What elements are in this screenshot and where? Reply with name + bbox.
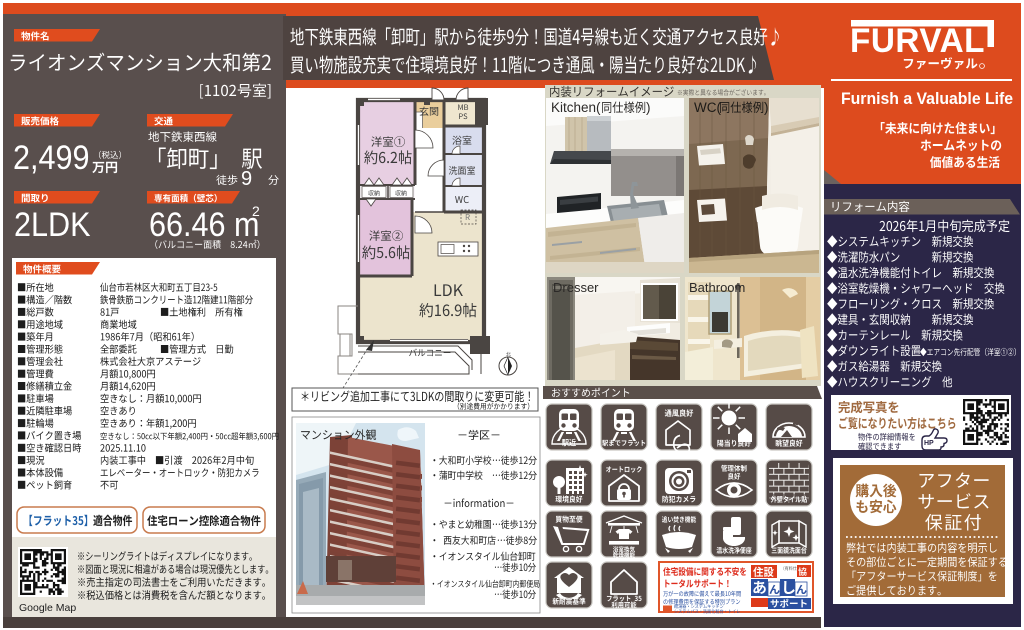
svg-text:66.46 m: 66.46 m [149, 206, 260, 244]
svg-text:WC(: WC( [694, 100, 721, 115]
svg-text:Google Map: Google Map [19, 602, 76, 614]
svg-text:Furnish a Valuable Life: Furnish a Valuable Life [841, 90, 1013, 109]
svg-text:Bathroom: Bathroom [689, 280, 745, 295]
svg-text:Dresser: Dresser [553, 280, 599, 295]
svg-text:Kitchen(: Kitchen( [551, 100, 601, 115]
svg-text:9: 9 [241, 168, 252, 190]
svg-text:2,499: 2,499 [13, 139, 90, 177]
svg-text:HP: HP [924, 440, 934, 447]
svg-text:FURVAL: FURVAL [850, 23, 985, 60]
svg-text:): ) [764, 100, 769, 115]
svg-text:2LDK: 2LDK [14, 206, 91, 244]
svg-text:): ) [646, 100, 651, 115]
svg-text:2: 2 [252, 203, 260, 219]
